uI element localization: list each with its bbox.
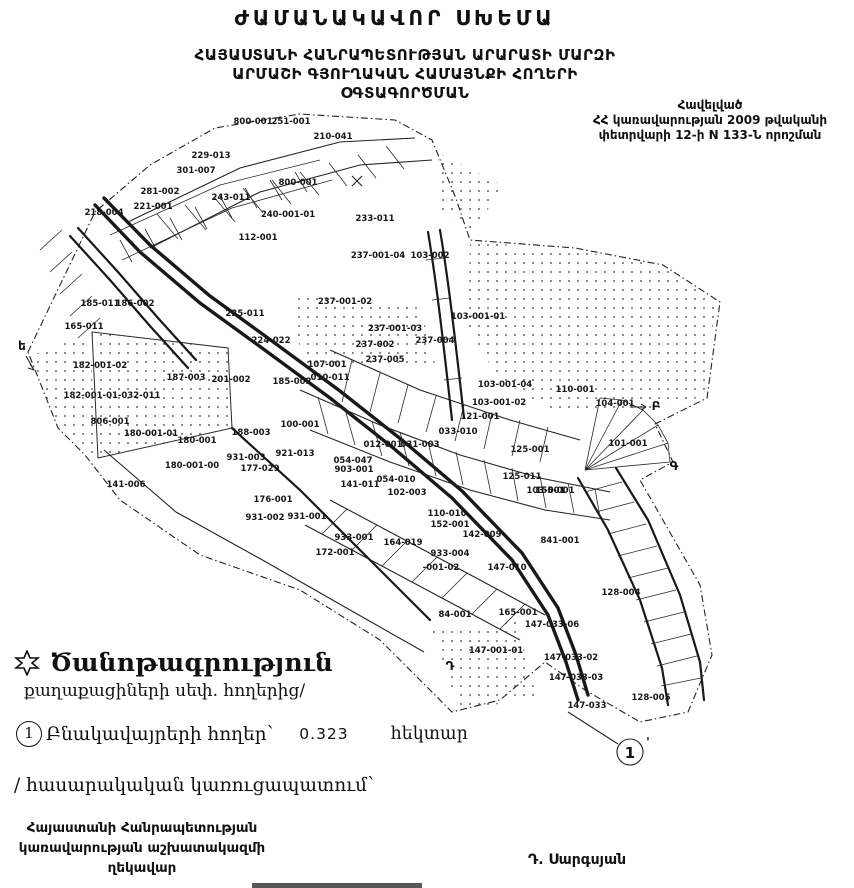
map-letter-marker: ե bbox=[18, 339, 26, 353]
parcel-label: 221-001 bbox=[133, 202, 172, 212]
parcel-label: 229-013 bbox=[191, 151, 230, 161]
scanned-cadastral-document: 1 ' 800-001251-001210-041229-013301-0078… bbox=[0, 0, 854, 888]
title-text: ԺԱՄԱՆԱԿԱՎՈՐ ՍԽԵՄԱ bbox=[234, 6, 555, 30]
parcel-label: 235-011 bbox=[225, 309, 264, 319]
parcel-label: 165-011 bbox=[64, 322, 103, 332]
parcel-label: 102-003 bbox=[387, 488, 426, 498]
legend-item-unit: հեկտար bbox=[391, 724, 468, 744]
footer-line1: Հայաստանի Հանրապետության bbox=[8, 818, 276, 838]
parcel-label: 121-001 bbox=[460, 412, 499, 422]
footer-line3: ղեկավար bbox=[8, 858, 276, 878]
parcel-label: 147-033-02 bbox=[544, 653, 598, 663]
parcel-label: 233-011 bbox=[355, 214, 394, 224]
parcel-label: 125-011 bbox=[502, 472, 541, 482]
appendix-annotation: Հավելված ՀՀ կառավարության 2009 թվականի փ… bbox=[566, 98, 854, 143]
parcel-label: 237-001-02 bbox=[318, 297, 372, 307]
parcel-label: 104-001 bbox=[595, 399, 634, 409]
legend-subtitle: քաղաքացիների սեփ. հողերից/ bbox=[24, 681, 484, 701]
parcel-label: 180-001-00 bbox=[165, 461, 219, 471]
parcel-label: 033-010 bbox=[438, 427, 477, 437]
parcel-label: 188-003 bbox=[231, 428, 270, 438]
parcel-label: 103-002 bbox=[410, 251, 449, 261]
parcel-label: 182-001-02 bbox=[73, 361, 127, 371]
parcel-label: 177-029 bbox=[240, 464, 279, 474]
parcel-label: 107-001 bbox=[307, 360, 346, 370]
parcel-label: 141-006 bbox=[106, 480, 145, 490]
parcel-label: 931-001 bbox=[287, 512, 326, 522]
subtitle-line1: ՀԱՅԱՍՏԱՆԻ ՀԱՆՐԱՊԵՏՈՒԹՅԱՆ ԱՐԱՐԱՏԻ ՄԱՐԶԻ bbox=[0, 46, 810, 65]
parcel-label: 903-001 bbox=[334, 465, 373, 475]
parcel-label: 180-001-01 bbox=[124, 429, 178, 439]
parcel-label: 176-001 bbox=[253, 495, 292, 505]
parcel-label: 155-001 bbox=[535, 486, 574, 496]
parcel-label: 800-001 bbox=[233, 117, 272, 127]
parcel-label: 125-001 bbox=[510, 445, 549, 455]
parcel-label: 010-011 bbox=[310, 373, 349, 383]
parcel-label: 152-001 bbox=[430, 520, 469, 530]
legend-footnote: / հասարակական կառուցապատում՝ bbox=[14, 775, 484, 796]
parcel-label: 054-010 bbox=[376, 475, 415, 485]
parcel-label: 921-013 bbox=[275, 449, 314, 459]
parcel-label: 237-001-03 bbox=[368, 324, 422, 334]
parcel-label: 800-001 bbox=[278, 178, 317, 188]
parcel-label: 224-022 bbox=[251, 336, 290, 346]
parcel-label: 147-033-03 bbox=[549, 673, 603, 683]
parcel-label: 172-001 bbox=[315, 548, 354, 558]
pointer-number: 1 bbox=[625, 744, 635, 762]
parcel-label: 237-004 bbox=[415, 336, 454, 346]
parcel-label: 210-041 bbox=[313, 132, 352, 142]
parcel-label: 128-005 bbox=[631, 693, 670, 703]
parcel-label: 185-011 bbox=[80, 299, 119, 309]
parcel-label: 128-004 bbox=[601, 588, 640, 598]
legend-item-label: Բնակավայրերի հողեր՝ bbox=[46, 724, 273, 745]
parcel-label: 100-001 bbox=[280, 420, 319, 430]
parcel-label: 164-019 bbox=[383, 538, 422, 548]
parcel-label: 931-003 bbox=[226, 453, 265, 463]
parcel-label: 187-003 bbox=[166, 373, 205, 383]
page-subtitle: ՀԱՅԱՍՏԱՆԻ ՀԱՆՐԱՊԵՏՈՒԹՅԱՆ ԱՐԱՐԱՏԻ ՄԱՐԶԻ Ա… bbox=[0, 46, 810, 103]
parcel-label: 237-005 bbox=[365, 355, 404, 365]
parcel-label: 031-003 bbox=[400, 440, 439, 450]
parcel-label: 141-011 bbox=[340, 480, 379, 490]
pointer-tick: ' bbox=[646, 735, 650, 749]
six-pointed-star-icon bbox=[14, 650, 40, 676]
parcel-label: 186-002 bbox=[115, 299, 154, 309]
parcel-label: 201-002 bbox=[211, 375, 250, 385]
legend-item-value: 0.323 bbox=[299, 725, 348, 743]
annotation-line1: Հավելված bbox=[566, 98, 854, 113]
parcel-label: 012-001 bbox=[363, 440, 402, 450]
parcel-label: 182-001-01-032-011 bbox=[64, 391, 161, 401]
parcel-label: 237-001-04 bbox=[351, 251, 405, 261]
map-letter-marker: Բ bbox=[652, 399, 661, 413]
parcel-label: 147-010 bbox=[487, 563, 526, 573]
page-title: ԺԱՄԱՆԱԿԱՎՈՐ ՍԽԵՄԱ bbox=[0, 6, 790, 30]
parcel-label: -001-02 bbox=[423, 563, 460, 573]
parcel-label: 931-002 bbox=[245, 513, 284, 523]
parcel-label: 841-001 bbox=[540, 536, 579, 546]
scan-artifact bbox=[252, 883, 422, 888]
parcel-label: 240-001-01 bbox=[261, 210, 315, 220]
parcel-label: 101-001 bbox=[608, 439, 647, 449]
annotation-line3: փետրվարի 12-ի N 133-Ն որոշման bbox=[566, 128, 854, 143]
parcel-label: 103-001-02 bbox=[472, 398, 526, 408]
footer-line2: կառավարության աշխատակազմի bbox=[8, 838, 276, 858]
parcel-label: 218-004 bbox=[84, 208, 123, 218]
signature-name: Դ. Սարգսյան bbox=[528, 852, 626, 868]
footer-official-title: Հայաստանի Հանրապետության կառավարության ա… bbox=[8, 818, 276, 878]
x-mark-icon bbox=[352, 176, 362, 186]
parcel-label: 110-010 bbox=[427, 509, 466, 519]
map-letter-marker: Գ bbox=[670, 459, 679, 473]
parcel-label: 112-001 bbox=[238, 233, 277, 243]
legend-title: Ծանոթագրություն bbox=[50, 648, 333, 677]
parcel-label: 84-001 bbox=[438, 610, 471, 620]
parcel-label: 237-002 bbox=[355, 340, 394, 350]
legend: Ծանոթագրություն քաղաքացիների սեփ. հողերի… bbox=[14, 648, 484, 796]
parcel-label: 301-007 bbox=[176, 166, 215, 176]
circled-number-icon: 1 bbox=[16, 721, 42, 747]
parcel-label: 142-009 bbox=[462, 530, 501, 540]
legend-item: 1 Բնակավայրերի հողեր՝ 0.323 հեկտար bbox=[16, 721, 484, 747]
parcel-label: 251-001 bbox=[271, 117, 310, 127]
parcel-label: 281-002 bbox=[140, 187, 179, 197]
parcel-label: 103-001-04 bbox=[478, 380, 532, 390]
parcel-label: 933-001 bbox=[334, 533, 373, 543]
parcel-label: 185-002 bbox=[272, 377, 311, 387]
parcel-label: 165-001 bbox=[498, 608, 537, 618]
parcel-label: 933-004 bbox=[430, 549, 469, 559]
parcel-label: 147-033-06 bbox=[525, 620, 579, 630]
parcel-label: 110-001 bbox=[555, 385, 594, 395]
parcel-label: 103-001-01 bbox=[451, 312, 505, 322]
parcel-label: 806-001 bbox=[90, 417, 129, 427]
parcel-label: 243-011 bbox=[211, 193, 250, 203]
parcel-label: 180-001 bbox=[177, 436, 216, 446]
annotation-line2: ՀՀ կառավարության 2009 թվականի bbox=[566, 113, 854, 128]
pointer-leader-line bbox=[568, 712, 618, 744]
subtitle-line2: ԱՐՄԱՇԻ ԳՅՈՒՂԱԿԱՆ ՀԱՄԱՅՆՔԻ ՀՈՂԵՐԻ bbox=[0, 65, 810, 84]
parcel-label: 147-033 bbox=[567, 701, 606, 711]
